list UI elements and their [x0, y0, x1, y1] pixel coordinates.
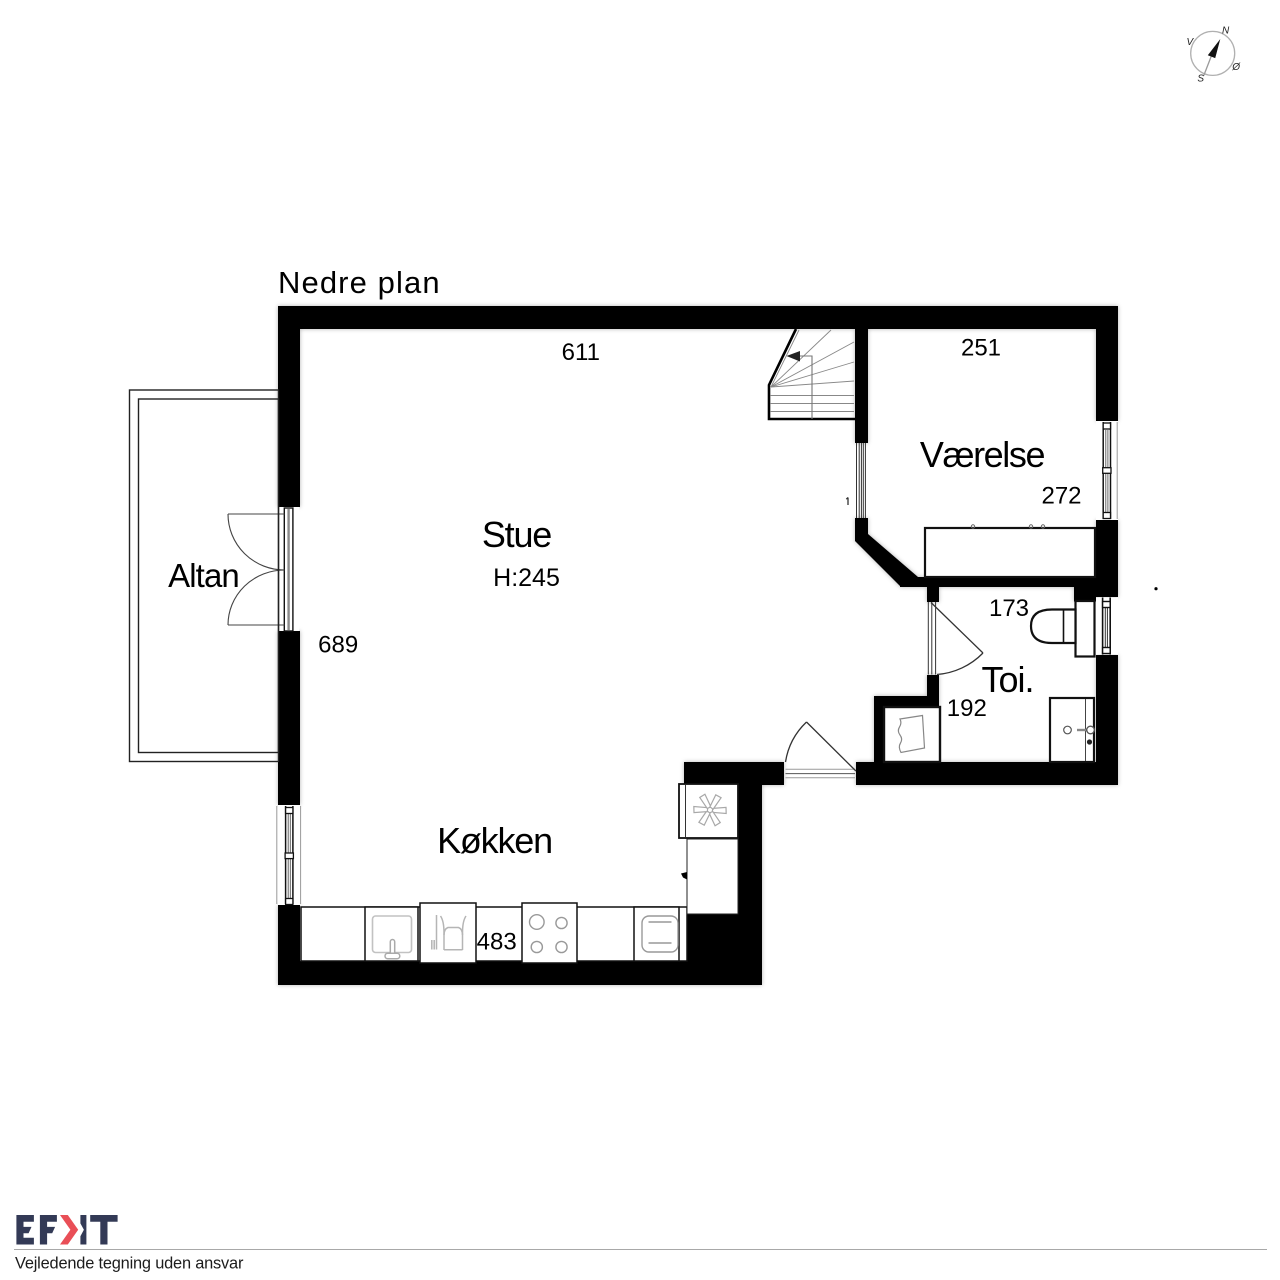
svg-text:192: 192	[947, 695, 987, 722]
svg-text:Køkken: Køkken	[437, 820, 552, 861]
svg-text:Vejledende tegning uden ansvar: Vejledende tegning uden ansvar	[15, 1255, 244, 1273]
svg-text:483: 483	[477, 929, 517, 956]
svg-text:N: N	[1222, 26, 1230, 37]
svg-text:Altan: Altan	[168, 557, 239, 594]
svg-text:Toi.: Toi.	[981, 659, 1033, 700]
svg-text:Ø: Ø	[1231, 62, 1241, 73]
svg-text:Værelse: Værelse	[920, 434, 1045, 475]
svg-text:Nedre plan: Nedre plan	[278, 265, 441, 300]
svg-text:689: 689	[318, 631, 358, 658]
svg-text:272: 272	[1041, 482, 1081, 509]
svg-text:Stue: Stue	[482, 514, 551, 555]
svg-text:611: 611	[562, 339, 600, 366]
svg-text:251: 251	[961, 335, 1001, 362]
svg-text:173: 173	[989, 595, 1029, 622]
svg-text:H:245: H:245	[493, 564, 560, 592]
svg-text:S: S	[1197, 73, 1204, 84]
